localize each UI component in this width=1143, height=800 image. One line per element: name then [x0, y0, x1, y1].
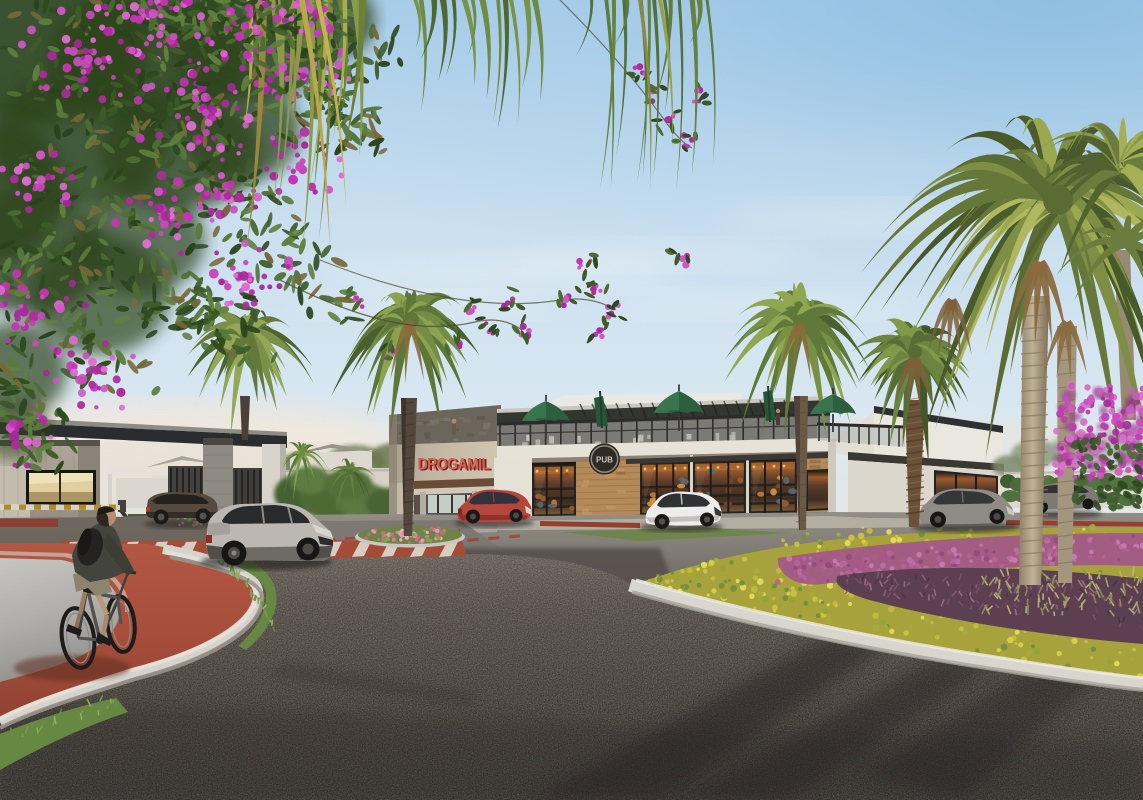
svg-text:DROGAMIL: DROGAMIL [418, 455, 490, 473]
svg-text:PUB: PUB [596, 456, 613, 465]
